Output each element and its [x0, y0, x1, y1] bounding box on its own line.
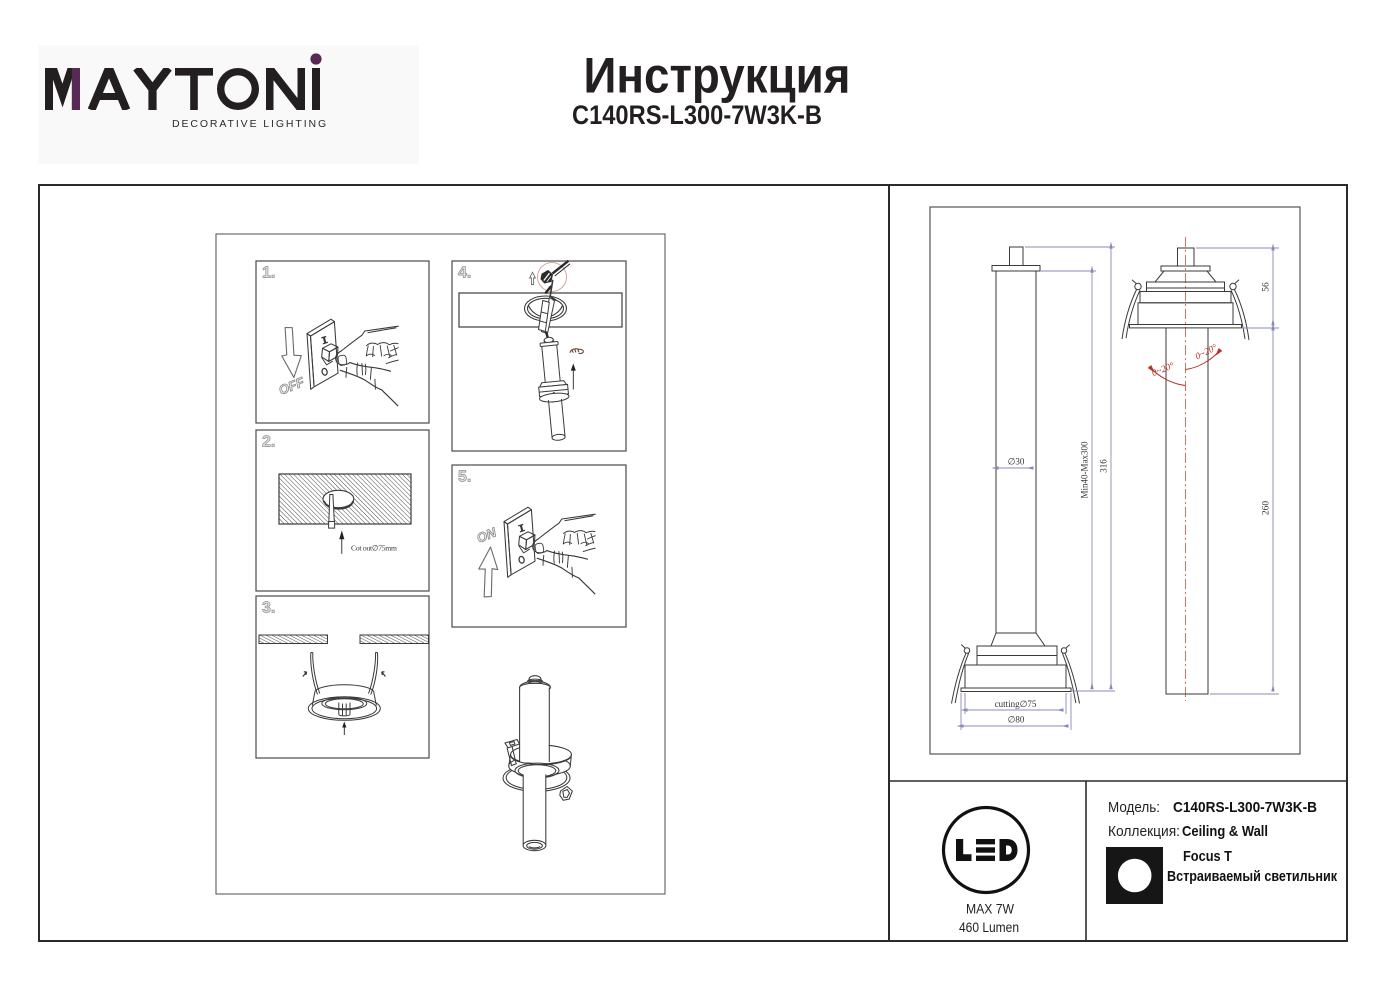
svg-text:∅80: ∅80 — [1008, 715, 1025, 725]
svg-text:∅30: ∅30 — [1008, 457, 1025, 467]
svg-text:Коллекция:: Коллекция: — [1108, 823, 1180, 840]
svg-text:260: 260 — [1262, 501, 1272, 516]
svg-text:460 Lumen: 460 Lumen — [959, 919, 1019, 935]
svg-text:1.: 1. — [262, 265, 275, 282]
svg-text:5.: 5. — [458, 469, 471, 486]
svg-text:Cot out∅75mm: Cot out∅75mm — [351, 544, 397, 553]
svg-text:Встраиваемый светильник: Встраиваемый светильник — [1167, 869, 1338, 885]
svg-text:Инструкция: Инструкция — [584, 48, 851, 104]
svg-text:Ceiling & Wall: Ceiling & Wall — [1182, 823, 1268, 840]
svg-text:C140RS-L300-7W3K-B: C140RS-L300-7W3K-B — [572, 100, 822, 130]
svg-text:ON: ON — [475, 524, 499, 545]
svg-text:MAX 7W: MAX 7W — [966, 901, 1015, 917]
svg-text:cutting∅75: cutting∅75 — [995, 699, 1037, 709]
svg-text:Модель:: Модель: — [1108, 799, 1160, 816]
svg-text:0~20°: 0~20° — [1150, 360, 1176, 379]
svg-text:316: 316 — [1099, 459, 1109, 473]
svg-text:2.: 2. — [262, 434, 275, 451]
svg-text:0~20°: 0~20° — [1194, 342, 1220, 362]
svg-text:Focus T: Focus T — [1183, 848, 1232, 865]
svg-text:DECORATIVE LIGHTING: DECORATIVE LIGHTING — [172, 118, 328, 130]
svg-text:4.: 4. — [458, 265, 471, 282]
svg-text:Min40-Max300: Min40-Max300 — [1080, 441, 1090, 498]
svg-text:3.: 3. — [262, 600, 275, 617]
svg-text:56: 56 — [1262, 282, 1272, 292]
svg-text:OFF: OFF — [277, 374, 308, 398]
svg-text:C140RS-L300-7W3K-B: C140RS-L300-7W3K-B — [1173, 799, 1317, 816]
